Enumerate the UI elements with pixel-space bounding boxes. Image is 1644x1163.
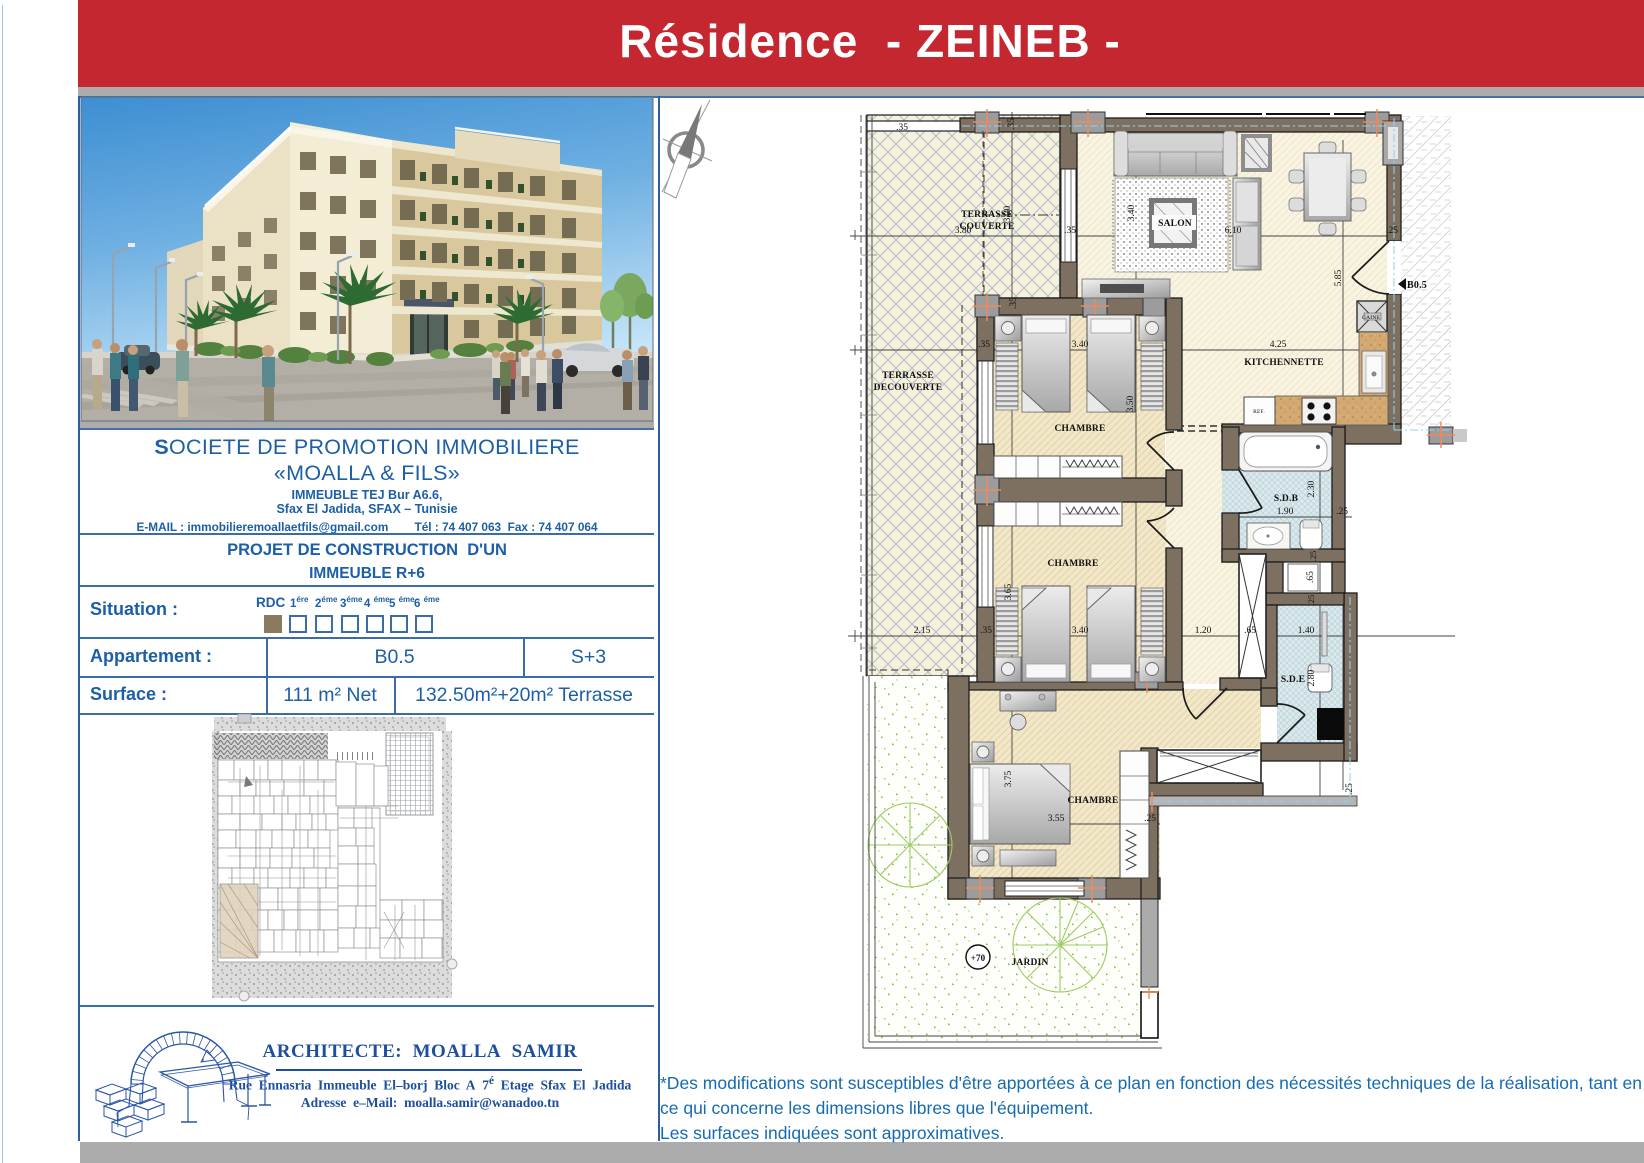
svg-text:1.90: 1.90 <box>1277 507 1294 517</box>
svg-text:3.40: 3.40 <box>1127 204 1137 221</box>
svg-text:.65: .65 <box>1306 571 1316 583</box>
svg-text:SALON: SALON <box>1158 219 1192 229</box>
svg-text:CHAMBRE: CHAMBRE <box>1047 559 1098 569</box>
svg-text:.25: .25 <box>1306 595 1316 606</box>
svg-text:DECOUVERTE: DECOUVERTE <box>874 383 943 393</box>
svg-text:.25: .25 <box>1144 814 1156 824</box>
svg-text:.35: .35 <box>980 626 992 636</box>
svg-text:3.50: 3.50 <box>1126 395 1136 412</box>
svg-text:2.30: 2.30 <box>1307 480 1317 497</box>
svg-text:.35: .35 <box>896 123 908 133</box>
svg-text:5.85: 5.85 <box>1334 269 1344 286</box>
svg-text:2.15: 2.15 <box>914 626 931 636</box>
svg-text:6.10: 6.10 <box>1225 226 1242 236</box>
svg-text:.25: .25 <box>1336 507 1348 517</box>
svg-text:CHAMBRE: CHAMBRE <box>1067 796 1118 806</box>
svg-text:CHAMBRE: CHAMBRE <box>1054 424 1105 434</box>
svg-text:.35: .35 <box>978 340 990 350</box>
svg-text:3.80: 3.80 <box>955 226 972 236</box>
svg-text:3.55: 3.55 <box>1048 814 1065 824</box>
svg-text:.35: .35 <box>1007 118 1017 130</box>
svg-text:.35: .35 <box>1009 297 1019 309</box>
svg-text:S.D.E: S.D.E <box>1281 675 1305 685</box>
svg-text:4.25: 4.25 <box>1270 340 1287 350</box>
svg-text:3.75: 3.75 <box>1004 770 1014 787</box>
svg-text:.25: .25 <box>1345 783 1355 795</box>
svg-text:3.40: 3.40 <box>1072 340 1089 350</box>
svg-text:2.80: 2.80 <box>1307 669 1317 686</box>
svg-text:3.65: 3.65 <box>1004 583 1014 600</box>
svg-text:+70: +70 <box>971 953 986 963</box>
svg-text:.65: .65 <box>1244 626 1256 636</box>
svg-text:1.40: 1.40 <box>1298 626 1315 636</box>
svg-text:JARDIN: JARDIN <box>1011 958 1048 968</box>
svg-text:.35: .35 <box>1064 226 1076 236</box>
svg-text:REF.: REF. <box>1253 409 1265 415</box>
svg-text:.25: .25 <box>1308 551 1318 562</box>
svg-text:B0.5: B0.5 <box>1407 280 1427 291</box>
svg-text:3.40: 3.40 <box>1072 626 1089 636</box>
svg-text:GAINE: GAINE <box>1362 315 1381 321</box>
svg-text:.25: .25 <box>1386 226 1398 236</box>
svg-text:KITCHENNETTE: KITCHENNETTE <box>1244 358 1323 368</box>
svg-text:S.D.B: S.D.B <box>1274 494 1299 504</box>
svg-text:TERRASSE: TERRASSE <box>882 371 934 381</box>
svg-text:1.20: 1.20 <box>1195 626 1212 636</box>
svg-text:3.20: 3.20 <box>1003 205 1013 222</box>
